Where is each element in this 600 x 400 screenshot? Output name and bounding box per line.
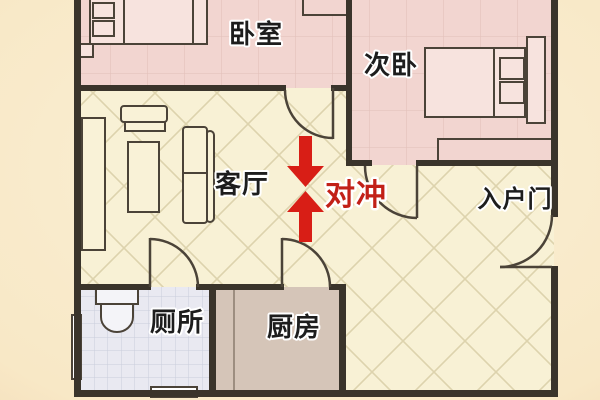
- wall: [74, 0, 81, 397]
- wall: [339, 287, 346, 392]
- wall: [416, 160, 556, 166]
- floor-plan-canvas: 卧室 次卧 客厅 厕所 厨房 入户门 对冲: [0, 0, 600, 400]
- coffee-table-icon: [128, 142, 159, 212]
- wall: [551, 266, 558, 397]
- toilet-label: 厕所: [150, 307, 204, 337]
- clash-label: 对冲: [325, 179, 387, 212]
- second-bedroom-label: 次卧: [364, 50, 418, 80]
- wall: [346, 0, 352, 165]
- living-room-label: 客厅: [215, 169, 269, 199]
- wall: [209, 287, 216, 392]
- cabinet-icon: [183, 127, 214, 223]
- wall: [346, 160, 372, 166]
- bed-icon: [425, 37, 545, 123]
- kitchen-label: 厨房: [267, 312, 321, 342]
- wall: [551, 0, 558, 217]
- wall: [74, 390, 558, 397]
- tv-table-icon: [121, 106, 167, 131]
- master-bedroom-label: 卧室: [229, 19, 283, 49]
- closet-icon: [303, 0, 348, 15]
- wall: [74, 85, 286, 91]
- wall: [74, 284, 151, 290]
- wardrobe-icon: [438, 139, 552, 161]
- entry-door-label: 入户门: [478, 185, 553, 213]
- sofa-icon: [82, 118, 105, 250]
- floor-plan-background: 卧室 次卧 客厅 厕所 厨房 入户门 对冲: [0, 0, 600, 400]
